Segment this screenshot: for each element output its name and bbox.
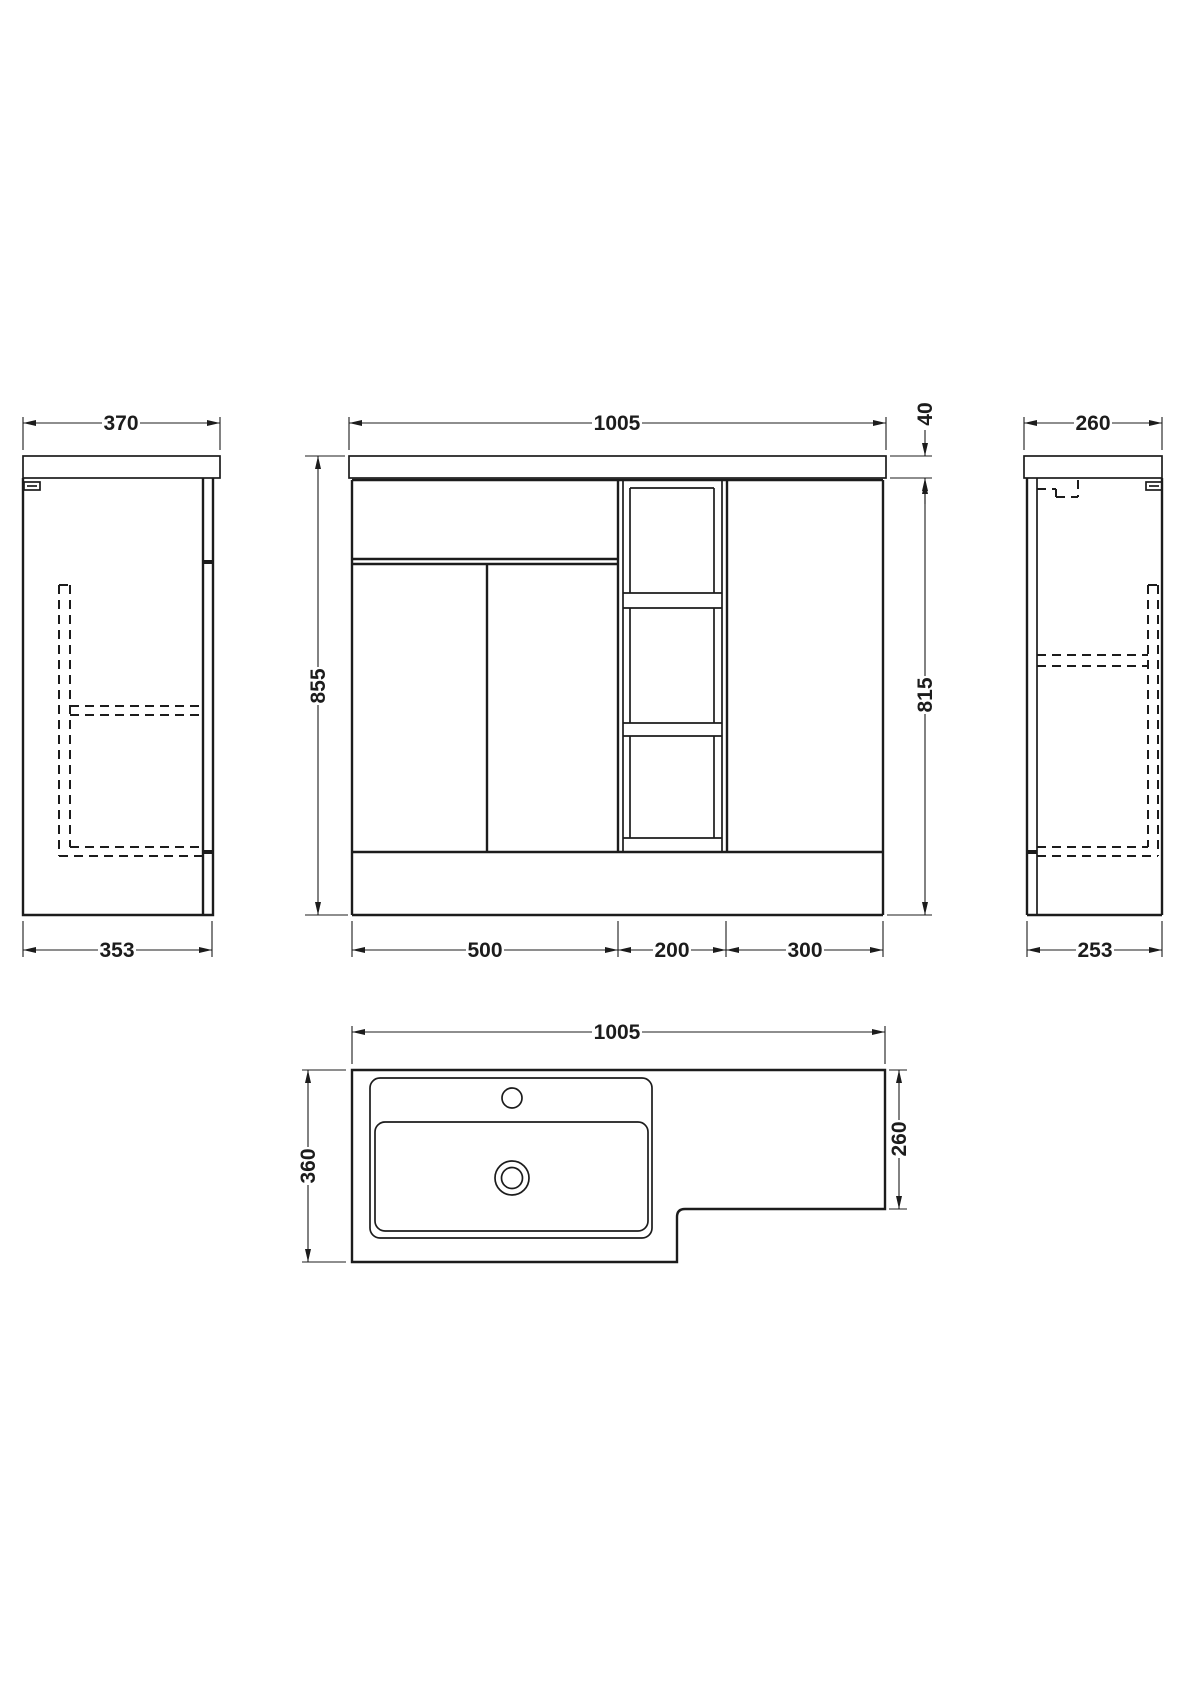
left-view-cabinet-outline (23, 478, 213, 915)
dim-40-label-group: 40 (914, 400, 937, 428)
dim-plan-basin-depth: 360 (297, 1070, 346, 1262)
front-view-cabinet-outline (352, 480, 883, 915)
left-view-hidden-shelves (59, 585, 203, 856)
left-side-view (23, 456, 220, 915)
dim-front-counter-thickness: 40 (890, 400, 937, 504)
dim-300-label: 300 (787, 939, 822, 962)
dim-right-counter-depth: 260 (1024, 412, 1162, 450)
front-view (349, 456, 886, 915)
front-view-countertop (349, 456, 886, 478)
dim-front-overall-width: 1005 (349, 412, 886, 450)
dim-left-counter-depth: 370 (23, 412, 220, 450)
dim-40-label: 40 (914, 402, 937, 425)
dim-370-label: 370 (103, 412, 138, 435)
dim-plan-260-label: 260 (888, 1121, 911, 1156)
dim-plan-1005-label: 1005 (594, 1021, 641, 1044)
plan-tap-hole (502, 1088, 522, 1108)
plan-view (352, 1070, 885, 1262)
dim-front-section-widths: 500 200 300 (352, 921, 883, 962)
dim-360-label: 360 (297, 1148, 320, 1183)
technical-drawing-canvas: 370 353 1005 40 815 855 (0, 0, 1190, 1684)
right-view-cabinet-outline (1027, 478, 1162, 915)
plan-basin-bowl (375, 1122, 648, 1231)
plan-waste-inner (502, 1168, 523, 1189)
dim-360-label-group: 360 (297, 1147, 320, 1185)
dim-500-label: 500 (467, 939, 502, 962)
plan-basin-rim (370, 1078, 652, 1238)
dim-200-label: 200 (654, 939, 689, 962)
right-view-countertop (1024, 456, 1162, 478)
dim-left-cabinet-depth: 353 (23, 921, 212, 962)
plan-countertop-outline (352, 1070, 885, 1262)
left-view-countertop (23, 456, 220, 478)
plan-waste-outer (495, 1161, 529, 1195)
dim-plan-overall-width: 1005 (352, 1021, 885, 1064)
dim-855-label-group: 855 (307, 667, 330, 705)
dim-plan-wc-depth: 260 (888, 1070, 911, 1209)
left-view-panel-joints (203, 562, 213, 852)
technical-drawing-page: 370 353 1005 40 815 855 (0, 0, 1190, 1684)
right-view-hidden-shelves (1037, 480, 1158, 856)
dim-front-overall-height: 855 (305, 456, 348, 915)
dim-1005-label: 1005 (594, 412, 641, 435)
dim-right-cabinet-depth: 253 (1027, 921, 1162, 962)
dim-855-label: 855 (307, 668, 330, 703)
front-view-open-shelf-unit (623, 480, 722, 852)
dim-815-label-group: 815 (914, 676, 937, 714)
dim-815-label: 815 (914, 677, 937, 712)
dim-front-cabinet-height: 815 (887, 481, 937, 915)
dim-40-extensions (890, 456, 932, 478)
right-side-view (1024, 456, 1162, 915)
dim-253-label: 253 (1077, 939, 1112, 962)
dim-plan-260-label-group: 260 (888, 1120, 911, 1158)
dim-353-label: 353 (99, 939, 134, 962)
dim-260-label: 260 (1075, 412, 1110, 435)
